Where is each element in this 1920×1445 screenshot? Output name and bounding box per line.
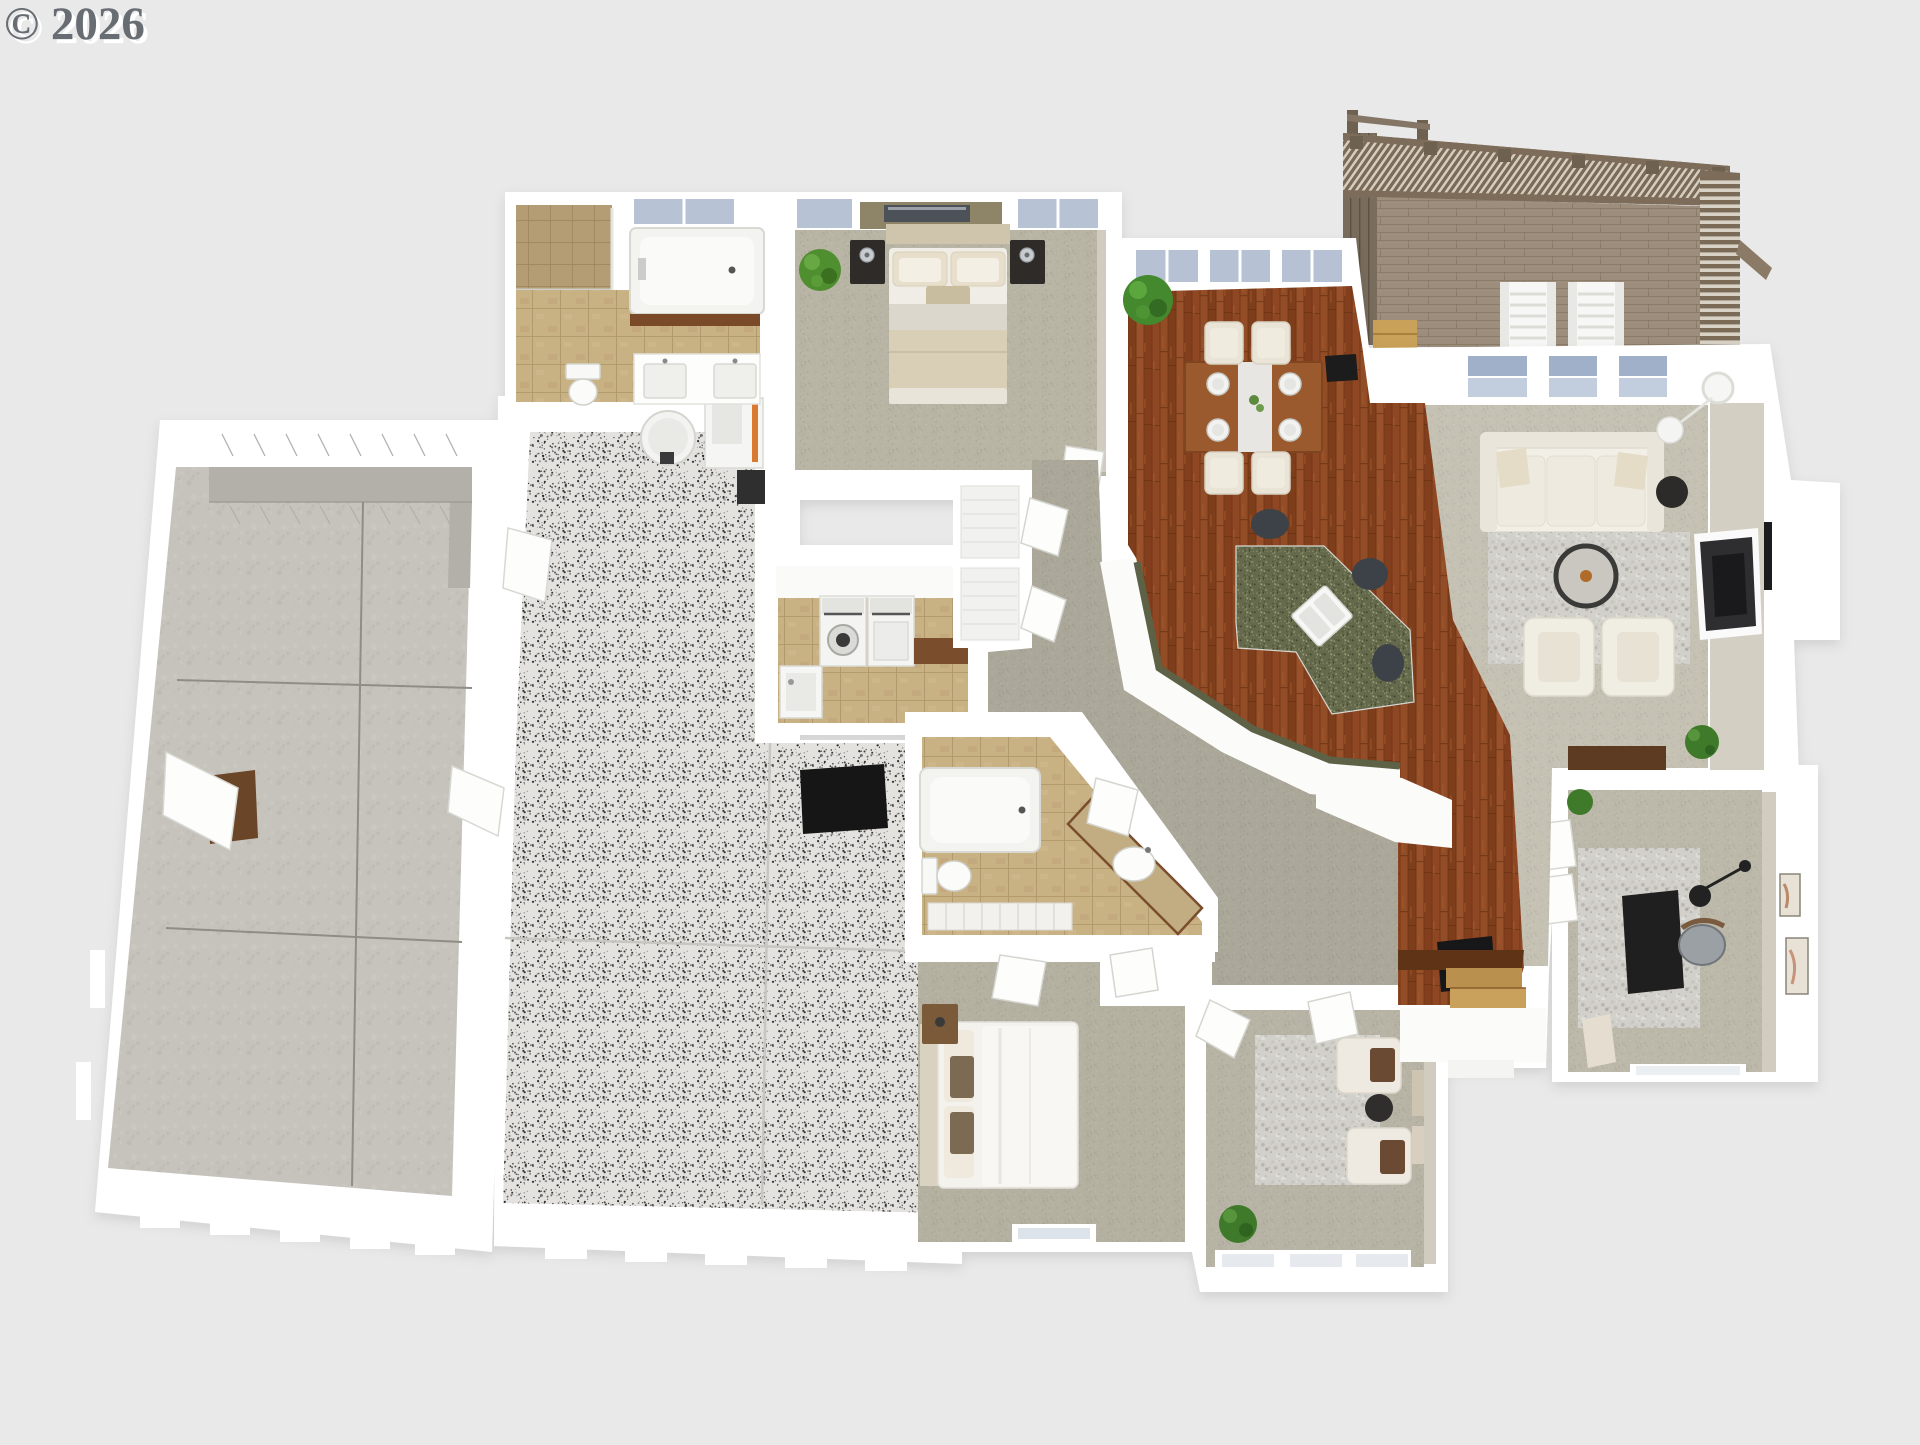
- svg-text:© 2026: © 2026: [4, 0, 145, 50]
